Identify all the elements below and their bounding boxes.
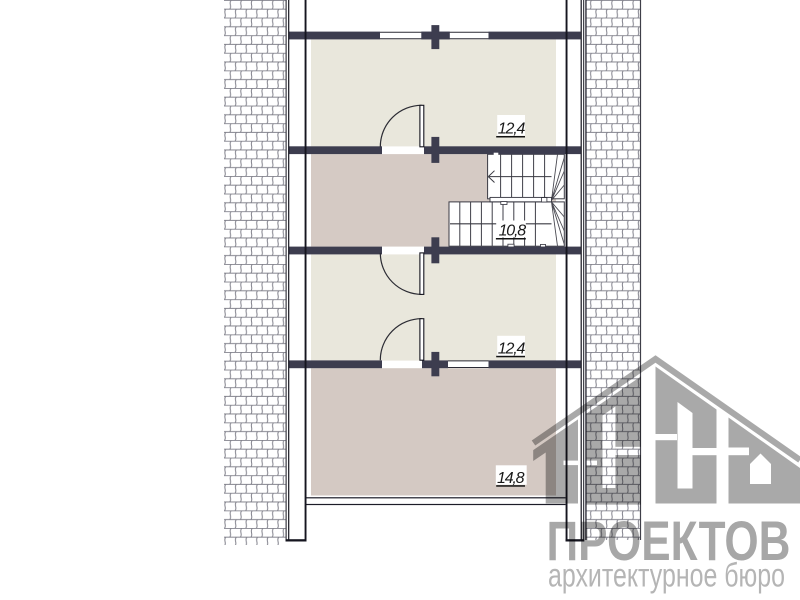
- svg-text:10,8: 10,8: [499, 223, 527, 240]
- svg-text:14,8: 14,8: [497, 470, 525, 487]
- svg-text:архитектурное бюро: архитектурное бюро: [548, 557, 785, 594]
- svg-text:12,4: 12,4: [498, 340, 526, 357]
- svg-text:12,4: 12,4: [498, 121, 526, 138]
